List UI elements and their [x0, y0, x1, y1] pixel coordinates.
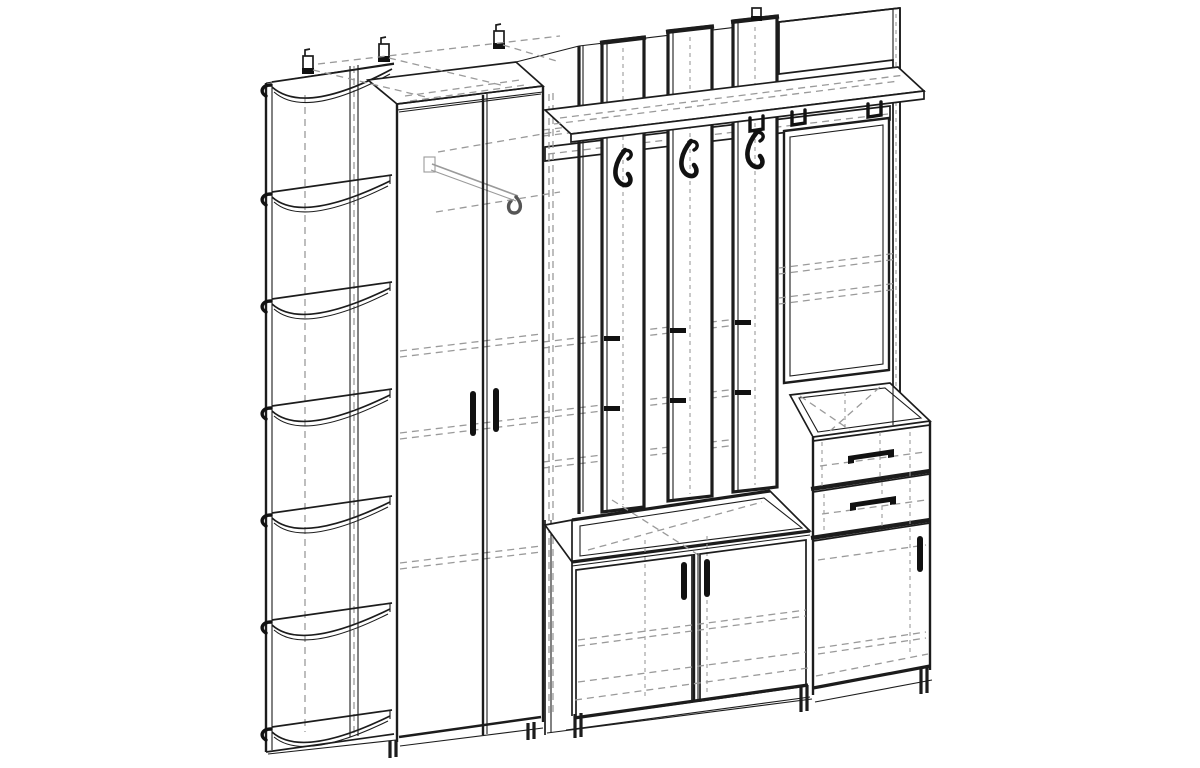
- drawer: [811, 474, 930, 538]
- drawer-handle: [848, 449, 894, 464]
- floor-lines: [268, 654, 928, 754]
- curved-shelf: [262, 603, 392, 640]
- mirror: Framed mirror on tall back panel: [779, 118, 898, 383]
- foot: [390, 740, 396, 758]
- wardrobe: Two-door wardrobe with pull-out hanger (…: [368, 62, 560, 742]
- cabinet-door-handle: [917, 536, 923, 572]
- curved-shelf: [262, 389, 392, 426]
- screenshot-canvas: Hallway furniture set — isometric techni…: [0, 0, 1200, 768]
- curved-shelf: [262, 282, 392, 319]
- corner-shelf-unit: Corner open shelf unit with curved quart…: [262, 63, 394, 752]
- furniture-technical-drawing: Hallway furniture set — isometric techni…: [0, 0, 1200, 768]
- curved-shelf: [262, 710, 392, 746]
- foot: [801, 685, 807, 712]
- foot: [921, 667, 927, 694]
- foot: [528, 722, 534, 740]
- curved-shelf: [262, 175, 392, 212]
- drawer-handle: [850, 496, 896, 511]
- wall-bracket-icon: [378, 37, 390, 62]
- bench-cabinet: Two-door base bench cabinet: [545, 491, 810, 735]
- bench-door-handle: [681, 559, 710, 600]
- wall-bracket-icon: [302, 49, 314, 74]
- pullout-hanger: [424, 131, 560, 213]
- wall-bracket-icon: [751, 8, 762, 21]
- curved-shelf: [262, 496, 392, 533]
- right-cabinet: Single-door base cabinet under drawers: [813, 523, 932, 702]
